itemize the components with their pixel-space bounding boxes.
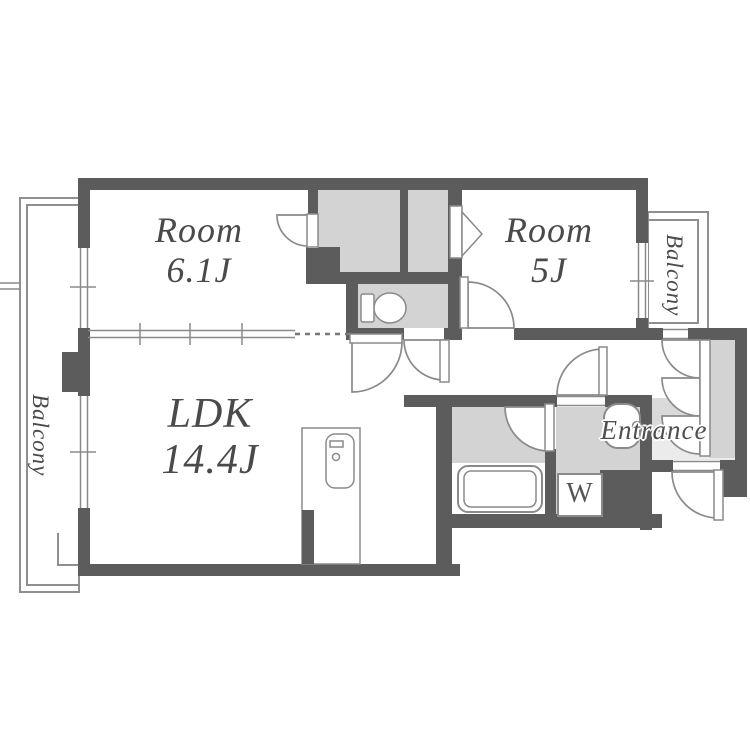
floor-plan-drawing (0, 0, 750, 750)
toilet-door (404, 340, 449, 382)
ldk-name-label: LDK (90, 392, 330, 436)
room2-name-label: Room (462, 212, 636, 250)
opening-entrance-door (673, 460, 720, 472)
sliding-partition (88, 323, 295, 345)
entrance-door (672, 470, 723, 520)
room1-name-label: Room (90, 212, 308, 250)
balcony-left-label: Balcony (22, 340, 58, 530)
bathtub-icon (458, 466, 542, 512)
opening-toilet-door (404, 328, 444, 340)
washing-machine-label: W (558, 479, 602, 508)
toilet-icon (361, 293, 406, 323)
room2-size-label: 5J (462, 252, 636, 290)
room1-size-label: 6.1J (90, 252, 308, 290)
floor-plan: Room 6.1J Room 5J LDK 14.4J Balcony Balc… (0, 0, 750, 750)
opening-room2-door (462, 328, 514, 340)
ldk-door (350, 334, 402, 392)
entrance-label: Entrance (570, 416, 738, 444)
corridor-washroom-door (557, 347, 607, 395)
balcony-right-label: Balcony (656, 180, 692, 370)
ldk-size-label: 14.4J (90, 438, 330, 482)
opening-washroom-door (557, 395, 605, 407)
closet-right-floor (408, 190, 448, 272)
